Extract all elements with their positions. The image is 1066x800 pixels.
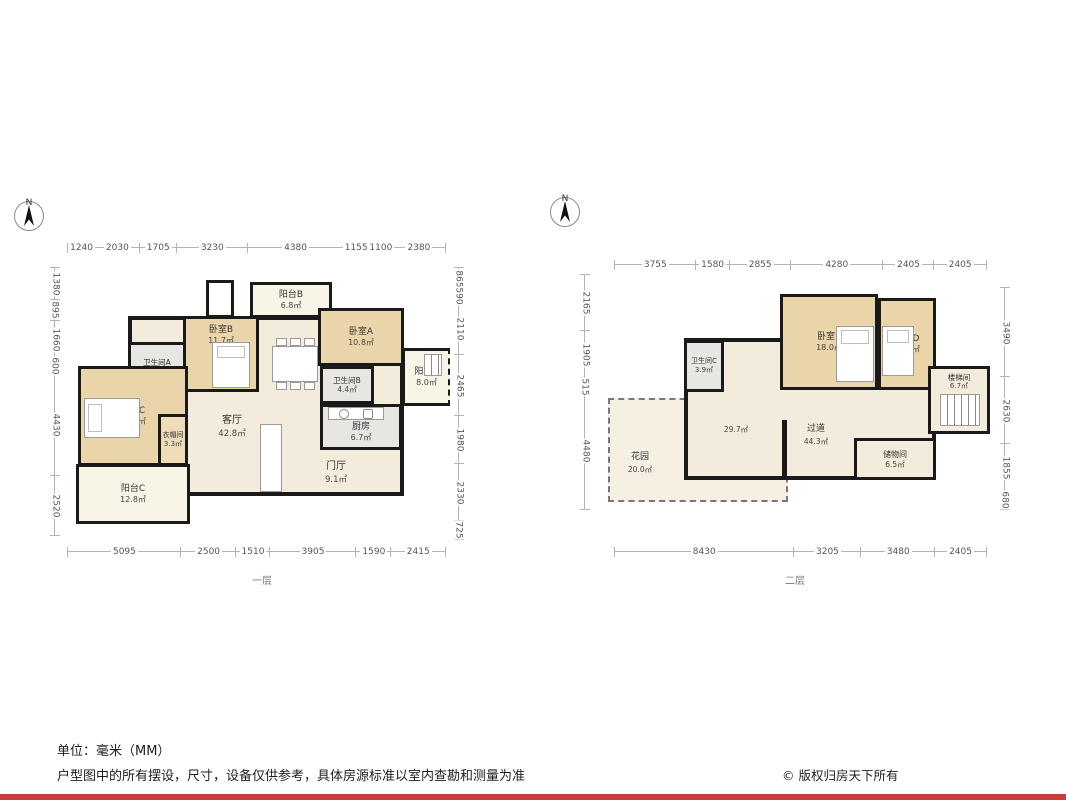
dim-segment: 2330 — [452, 464, 466, 521]
bed-icon — [212, 342, 250, 388]
dim-value: 1155 — [343, 243, 370, 253]
dim-segment: 5095 — [68, 545, 181, 559]
dim-value: 2405 — [895, 260, 922, 270]
dim-strip-left-floor2: 2165 1905 515 4480 — [578, 275, 592, 510]
dim-value: 3905 — [300, 547, 327, 557]
unit-note: 单位：毫米（MM） — [57, 740, 170, 759]
dim-segment: 1100 — [369, 241, 393, 255]
room-closet: 衣帽间 3.3㎡ — [158, 414, 188, 466]
bottom-red-bar — [0, 794, 1066, 800]
dim-segment: 2405 — [883, 258, 935, 272]
dim-segment: 3905 — [270, 545, 357, 559]
room-name: 阳台B — [279, 290, 303, 301]
dim-value: 3205 — [814, 547, 841, 557]
dim-tick — [445, 243, 446, 253]
chair-icon — [290, 382, 301, 390]
room-area: 6.7㎡ — [950, 382, 968, 390]
dim-value: 1705 — [145, 243, 172, 253]
room-name: 储物间 — [883, 450, 907, 460]
dim-segment: 2630 — [998, 377, 1012, 444]
dim-value: 4380 — [282, 243, 309, 253]
dim-segment: 2405 — [935, 545, 986, 559]
dim-value: 3490 — [999, 320, 1011, 345]
north-label: N — [548, 194, 582, 204]
room-area: 6.7㎡ — [351, 433, 372, 443]
dim-segment: 1980 — [452, 416, 466, 465]
room-bathroom-c: 卫生间C 3.9㎡ — [684, 340, 724, 392]
dim-value: 2630 — [999, 398, 1011, 423]
dim-value: 8430 — [691, 547, 718, 557]
dim-value: 895 — [49, 301, 61, 320]
room-area: 9.1㎡ — [308, 473, 364, 485]
room-area: 12.8㎡ — [120, 495, 146, 505]
dim-value: 5095 — [111, 547, 138, 557]
dim-segment: 2500 — [181, 545, 236, 559]
dim-segment: 2030 — [95, 241, 139, 255]
dim-segment: 2520 — [48, 476, 62, 535]
dim-segment: 3480 — [861, 545, 935, 559]
dim-segment: 895 — [48, 300, 62, 321]
room-area: 42.8㎡ — [200, 427, 264, 439]
dim-strip-left-floor1: 1380 895 1660 600 4430 2520 — [48, 268, 62, 536]
dim-value: 3230 — [199, 243, 226, 253]
dim-value: 1580 — [699, 260, 726, 270]
dim-segment: 725 — [452, 521, 466, 539]
dim-segment: 2405 — [934, 258, 986, 272]
dim-tick — [986, 260, 987, 270]
chair-icon — [276, 338, 287, 346]
floor1-label: 一层 — [212, 572, 312, 587]
room-name: 花园 — [614, 452, 666, 464]
room-area: 4.4㎡ — [337, 385, 356, 394]
dim-value: 2330 — [453, 480, 465, 505]
bay-window — [206, 280, 234, 318]
room-name: 卧室A — [349, 327, 373, 338]
dim-value: 2415 — [405, 547, 432, 557]
room-balcony-c: 阳台C 12.8㎡ — [76, 464, 190, 524]
dim-segment: 600 — [48, 359, 62, 373]
dim-value: 600 — [49, 357, 61, 376]
bed-icon — [836, 326, 874, 382]
dim-value: 2405 — [947, 260, 974, 270]
floorplan-image: N 1240 2030 1705 3230 4380 1155 1100 238… — [0, 0, 1066, 800]
dim-segment: 2165 — [578, 275, 592, 331]
dim-tick — [580, 509, 590, 510]
dim-value: 515 — [579, 377, 591, 396]
dim-segment: 1660 — [48, 321, 62, 360]
dim-value: 1590 — [360, 547, 387, 557]
dim-segment: 1705 — [140, 241, 177, 255]
sink-icon — [363, 409, 373, 419]
dim-value: 725 — [453, 521, 465, 540]
dim-segment: 3755 — [615, 258, 696, 272]
dim-strip-right-floor1: 865 590 2110 2465 1980 2330 725 — [452, 268, 466, 540]
room-area: 29.7㎡ — [710, 424, 762, 435]
dim-segment: 590 — [452, 289, 466, 303]
chair-icon — [304, 338, 315, 346]
dim-segment: 4380 — [248, 241, 344, 255]
room-area: 44.3㎡ — [788, 436, 844, 447]
room-name: 卧室B — [209, 325, 233, 336]
room-name: 卫生间C — [691, 357, 717, 366]
room-area: 6.5㎡ — [885, 460, 904, 469]
room-name: 客厅 — [200, 414, 264, 427]
dim-strip-bottom-floor1: 5095 2500 1510 3905 1590 2415 — [68, 545, 446, 559]
north-label: N — [12, 198, 46, 208]
dim-segment: 2855 — [730, 258, 791, 272]
floor2-label: 二层 — [745, 572, 845, 587]
dim-segment: 3490 — [998, 288, 1012, 377]
dim-value: 3755 — [642, 260, 669, 270]
dim-value: 2030 — [104, 243, 131, 253]
dim-segment: 4430 — [48, 373, 62, 476]
dining-table-icon — [272, 346, 318, 382]
dim-segment: 1240 — [68, 241, 95, 255]
stove-icon — [328, 407, 384, 420]
room-storage: 储物间 6.5㎡ — [854, 438, 936, 480]
room-corridor-label: 过道 44.3㎡ — [788, 424, 844, 447]
north-arrow-floor1: N — [12, 198, 46, 231]
dim-segment: 2110 — [452, 304, 466, 356]
room-bathroom-b: 卫生间B 4.4㎡ — [320, 366, 374, 404]
bed-icon — [84, 398, 140, 438]
dim-segment: 1155 — [344, 241, 369, 255]
copyright-text: © 版权归房天下所有 — [782, 765, 898, 784]
room-bedroom-a: 卧室A 10.8㎡ — [318, 308, 404, 366]
dim-value: 2380 — [405, 243, 432, 253]
dim-value: 2855 — [747, 260, 774, 270]
room-area: 3.9㎡ — [695, 366, 713, 374]
dim-value: 2520 — [49, 493, 61, 518]
dim-value: 2110 — [453, 317, 465, 342]
ladder-icon — [424, 354, 442, 376]
dim-value: 680 — [999, 491, 1011, 510]
dim-value: 1100 — [367, 243, 394, 253]
dim-value: 1660 — [49, 328, 61, 353]
dim-segment: 4480 — [578, 393, 592, 509]
room-name: 楼梯间 — [948, 373, 971, 382]
room-name: 衣帽间 — [163, 431, 184, 440]
dim-strip-right-floor2: 3490 2630 1855 680 — [998, 288, 1012, 510]
dim-value: 2405 — [947, 547, 974, 557]
room-area: 8.0㎡ — [416, 378, 437, 388]
dim-tick — [986, 547, 987, 557]
dim-value: 4280 — [823, 260, 850, 270]
burner-icon — [339, 409, 349, 419]
chair-icon — [290, 338, 301, 346]
dim-value: 865 — [453, 269, 465, 288]
dim-value: 1980 — [453, 427, 465, 452]
dim-value: 2500 — [195, 547, 222, 557]
dim-value: 1510 — [240, 547, 267, 557]
dim-segment: 1510 — [236, 545, 269, 559]
chair-icon — [276, 382, 287, 390]
dim-segment: 1380 — [48, 268, 62, 300]
dim-tick — [50, 535, 60, 536]
dim-segment: 8430 — [615, 545, 794, 559]
dim-value: 4480 — [579, 439, 591, 464]
room-name: 门厅 — [308, 460, 364, 473]
room-name: 卫生间B — [333, 376, 361, 385]
dim-segment: 1590 — [356, 545, 391, 559]
dim-value: 2165 — [579, 290, 591, 315]
dim-value: 2465 — [453, 373, 465, 398]
dim-segment: 1580 — [696, 258, 730, 272]
dim-segment: 680 — [998, 492, 1012, 509]
room-living-label: 客厅 42.8㎡ — [200, 414, 264, 439]
dim-value: 3480 — [885, 547, 912, 557]
dim-value: 1855 — [999, 455, 1011, 480]
dim-strip-top-floor2: 3755 1580 2855 4280 2405 2405 — [615, 258, 987, 272]
dim-segment: 2465 — [452, 355, 466, 415]
room-area: 3.3㎡ — [164, 440, 182, 448]
dim-segment: 515 — [578, 380, 592, 393]
dim-value: 1905 — [579, 343, 591, 368]
dim-strip-bottom-floor2: 8430 3205 3480 2405 — [615, 545, 987, 559]
north-arrow-floor2: N — [548, 194, 582, 227]
stairs-icon — [940, 394, 980, 426]
dim-value: 590 — [453, 287, 465, 306]
dim-tick — [445, 547, 446, 557]
disclaimer-text: 户型图中的所有摆设，尺寸，设备仅供参考，具体房源标准以室内查勘和测量为准 — [57, 765, 525, 784]
dim-segment: 4280 — [791, 258, 883, 272]
room-area: 20.0㎡ — [614, 464, 666, 475]
room-name: 阳台C — [121, 484, 145, 495]
dim-value: 1380 — [49, 272, 61, 297]
chair-icon — [304, 382, 315, 390]
room-open-area-label: 29.7㎡ — [710, 424, 762, 435]
dim-segment: 1905 — [578, 331, 592, 380]
room-name: 过道 — [788, 424, 844, 436]
wall-segment — [782, 420, 787, 478]
dim-segment: 3205 — [794, 545, 862, 559]
dim-segment: 1855 — [998, 444, 1012, 491]
dim-segment: 3230 — [177, 241, 248, 255]
room-area: 10.8㎡ — [348, 338, 374, 348]
room-garden-label: 花园 20.0㎡ — [614, 452, 666, 475]
room-area: 6.8㎡ — [281, 301, 302, 311]
dim-segment: 2415 — [391, 545, 445, 559]
bed-icon — [882, 326, 914, 376]
dim-value: 1240 — [68, 243, 95, 253]
room-name: 厨房 — [352, 422, 370, 433]
dim-strip-top-floor1: 1240 2030 1705 3230 4380 1155 1100 2380 — [68, 241, 446, 255]
dim-value: 4430 — [49, 412, 61, 437]
dim-segment: 2380 — [393, 241, 445, 255]
room-foyer-label: 门厅 9.1㎡ — [308, 460, 364, 485]
